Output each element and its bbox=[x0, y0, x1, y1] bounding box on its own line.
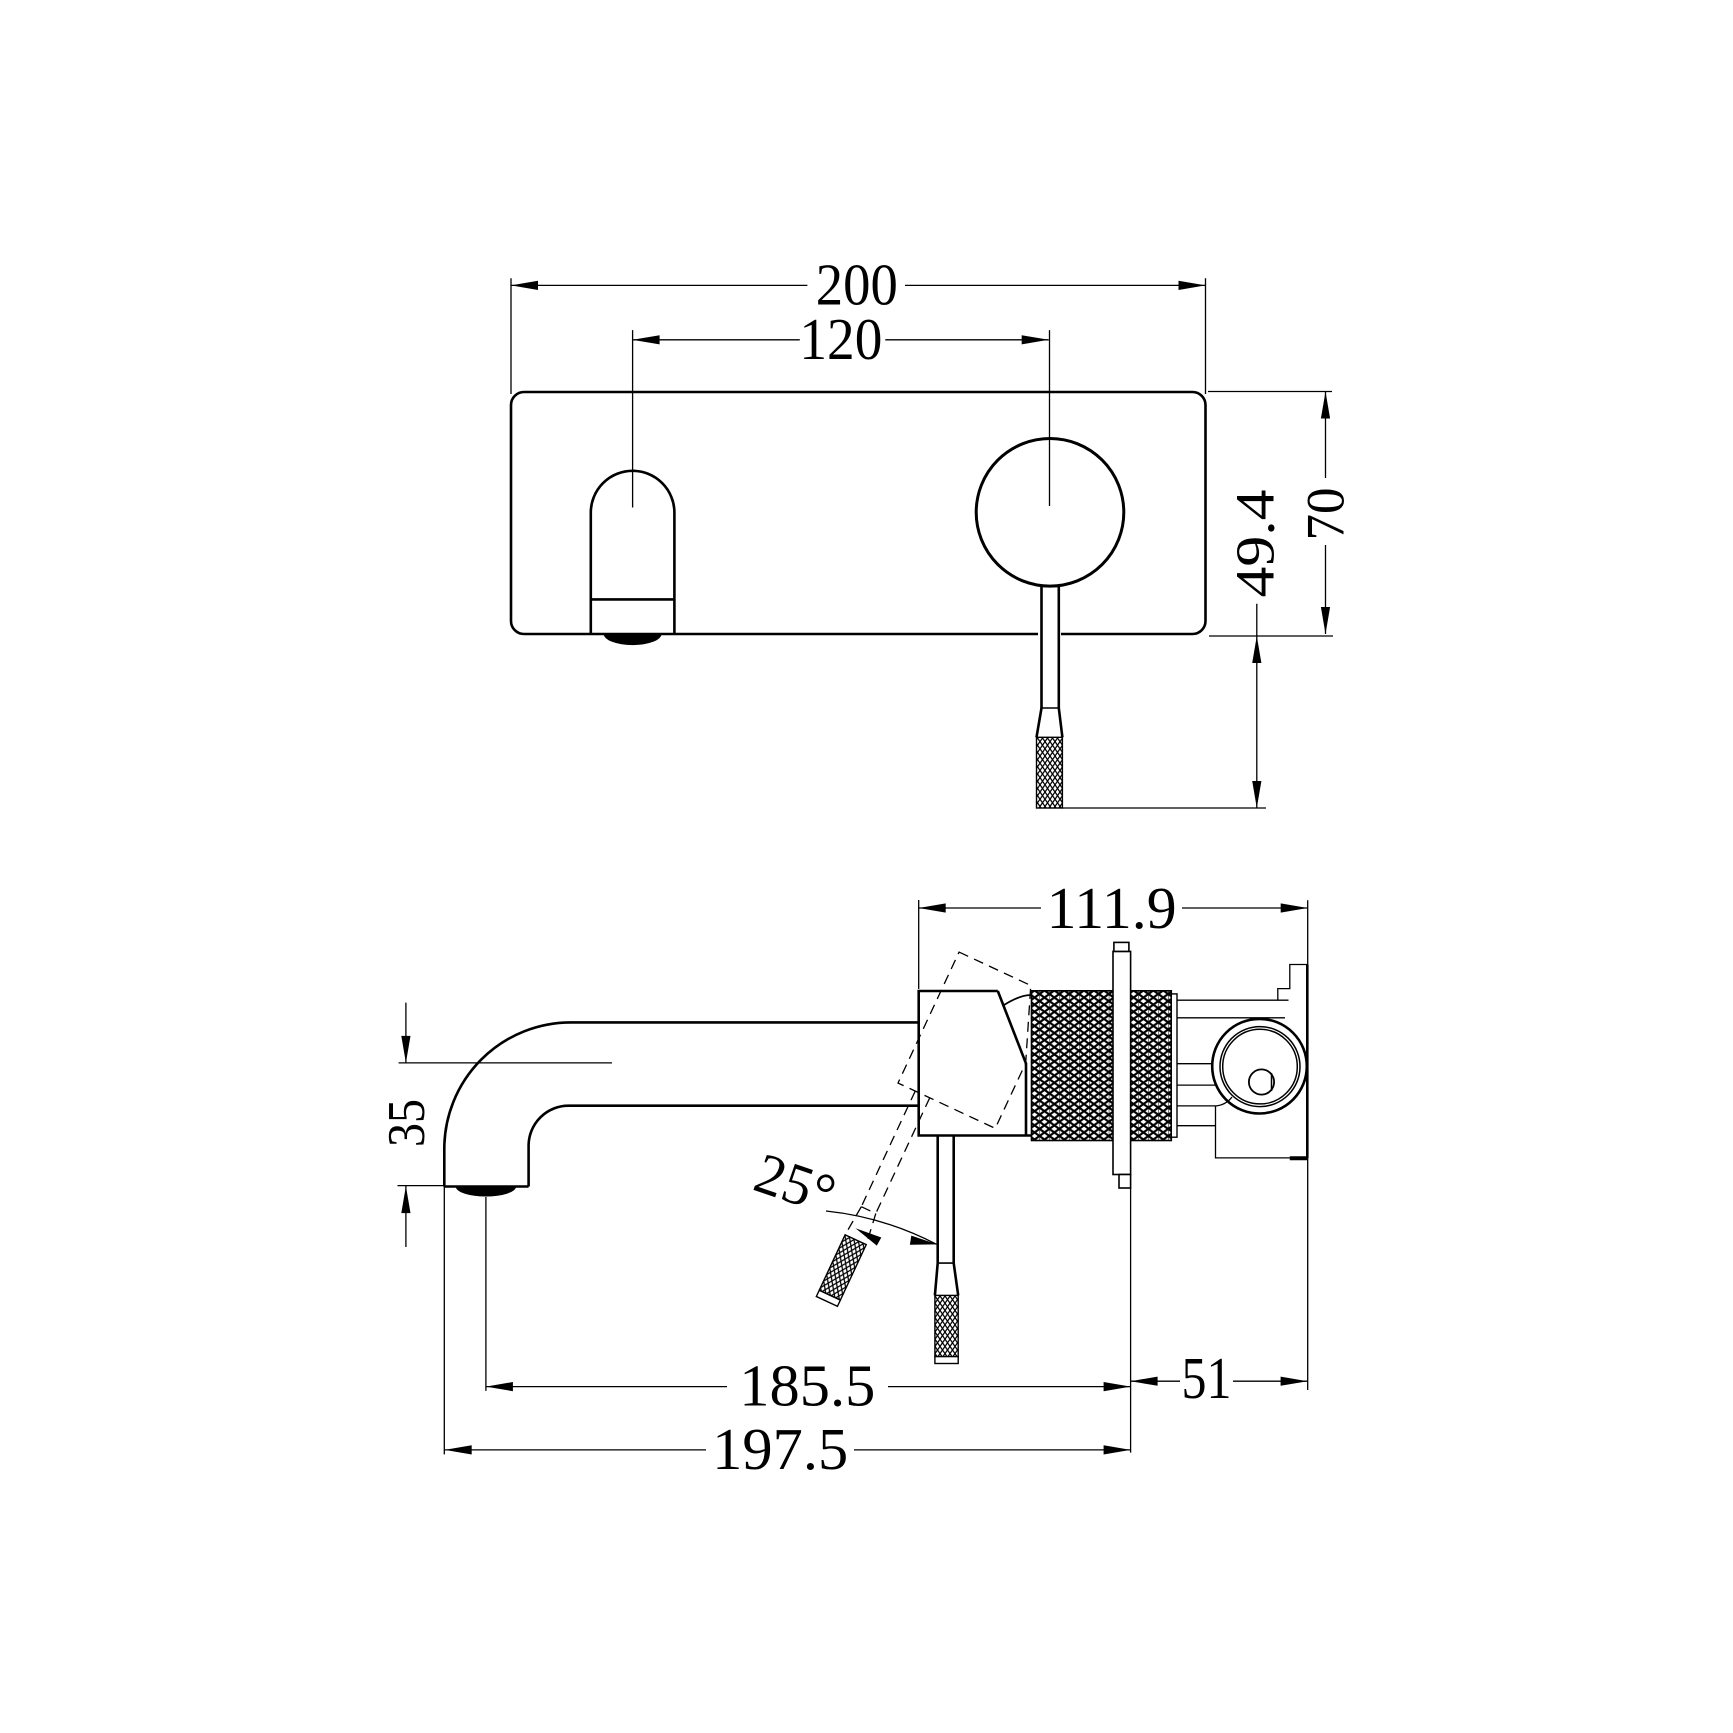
svg-text:185.5: 185.5 bbox=[739, 1353, 875, 1419]
svg-text:49.4: 49.4 bbox=[1225, 490, 1286, 598]
svg-text:120: 120 bbox=[799, 306, 882, 372]
svg-text:35: 35 bbox=[378, 1099, 436, 1147]
svg-text:70: 70 bbox=[1296, 488, 1356, 541]
svg-text:51: 51 bbox=[1182, 1345, 1232, 1411]
svg-text:197.5: 197.5 bbox=[712, 1416, 848, 1482]
svg-text:111.9: 111.9 bbox=[1047, 875, 1177, 941]
svg-text:25°: 25° bbox=[747, 1140, 844, 1228]
